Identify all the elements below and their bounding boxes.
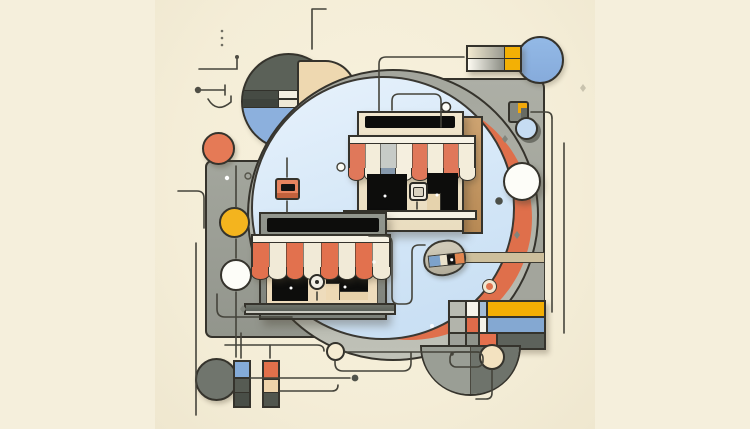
awning-stripe: [350, 144, 365, 169]
awning-stripe: [286, 267, 305, 280]
gradient-card: [466, 45, 522, 72]
storefront-upper-window-sill: [427, 193, 441, 211]
awning-stripe: [348, 168, 365, 181]
color-cell: [235, 379, 249, 392]
awning-stripe: [372, 267, 391, 280]
awning-stripe: [372, 243, 389, 268]
color-cell: [480, 318, 486, 332]
color-cell: [450, 302, 465, 316]
awning-stripe: [355, 243, 372, 268]
color-cell: [450, 318, 465, 332]
awning-stripe: [321, 243, 338, 268]
storefront-lower-awning: [251, 234, 391, 280]
awning-stripe: [365, 144, 381, 169]
white-circle-right: [503, 162, 541, 201]
peach-circle-bottomright: [479, 344, 505, 370]
yellow-circle-left: [219, 207, 250, 238]
segment-bar-blue: [233, 360, 251, 408]
salmon-card-widget: [275, 178, 300, 200]
color-cell: [467, 318, 478, 332]
awning-top-strip: [350, 137, 474, 144]
awning-slope: [348, 135, 476, 169]
storefront-lower-window-sill: [340, 291, 368, 300]
awning-stripe: [380, 144, 396, 169]
segment-bar-orange: [262, 360, 280, 408]
color-cell: [264, 362, 278, 378]
door-sign-glyph: [413, 187, 424, 197]
awning-stripe: [355, 267, 374, 280]
color-cell: [480, 302, 486, 316]
awning-stripe: [396, 144, 412, 169]
color-cell: [235, 393, 249, 406]
gradient-row: [468, 58, 520, 70]
mondrian-grid: [448, 300, 546, 350]
awning-stripe: [338, 267, 357, 280]
storefront-upper-window-left: [367, 174, 407, 213]
orange-circle-left: [202, 132, 235, 165]
storefront-upper-sign-band: [365, 116, 455, 128]
awning-top-strip: [253, 236, 389, 243]
gradient-row: [468, 47, 520, 58]
awning-stripe: [251, 267, 270, 280]
door-sign-icon: [409, 182, 428, 201]
badge-orange-segment: [455, 253, 465, 264]
doorbell-icon: [309, 274, 325, 290]
color-cell: [264, 380, 278, 392]
illustration: [0, 0, 750, 429]
widget-screen: [281, 184, 295, 191]
storefront-lower-ledge: [244, 303, 396, 315]
color-cell: [264, 393, 278, 406]
color-cell: [235, 362, 249, 377]
awning-stripe: [411, 168, 428, 181]
awning-stripe: [286, 243, 303, 268]
awning-stripe: [268, 267, 287, 280]
badge-stripe: [428, 252, 466, 268]
awning-stripe: [338, 243, 355, 268]
blue-circle-topright: [516, 36, 564, 84]
awning-stripe: [427, 144, 443, 169]
awning-stripe: [458, 144, 474, 169]
awning-stripe: [253, 243, 269, 268]
awning-stripe: [412, 144, 428, 169]
awning-stripe: [443, 144, 459, 169]
widget-base: [277, 193, 298, 198]
awning-stripe: [459, 168, 476, 181]
yellow-block: [504, 59, 520, 70]
storefront-lower-sign-band: [267, 218, 379, 232]
color-cell: [488, 302, 544, 316]
color-cell: [467, 302, 478, 316]
awning-stripe: [303, 243, 320, 268]
color-cell: [488, 318, 544, 332]
badge-black-segment: [447, 254, 456, 265]
awning-stripe: [269, 243, 286, 268]
dark-circle-bottomleft: [195, 358, 238, 401]
awning-slope: [251, 234, 391, 268]
yellow-block: [504, 47, 520, 58]
small-blue-circle: [515, 117, 538, 140]
white-circle-left: [220, 259, 252, 291]
cream-circle-bottomcenter: [326, 342, 345, 361]
orange-dot-circle: [482, 279, 497, 294]
storefront-lower-window-sill: [326, 283, 340, 300]
